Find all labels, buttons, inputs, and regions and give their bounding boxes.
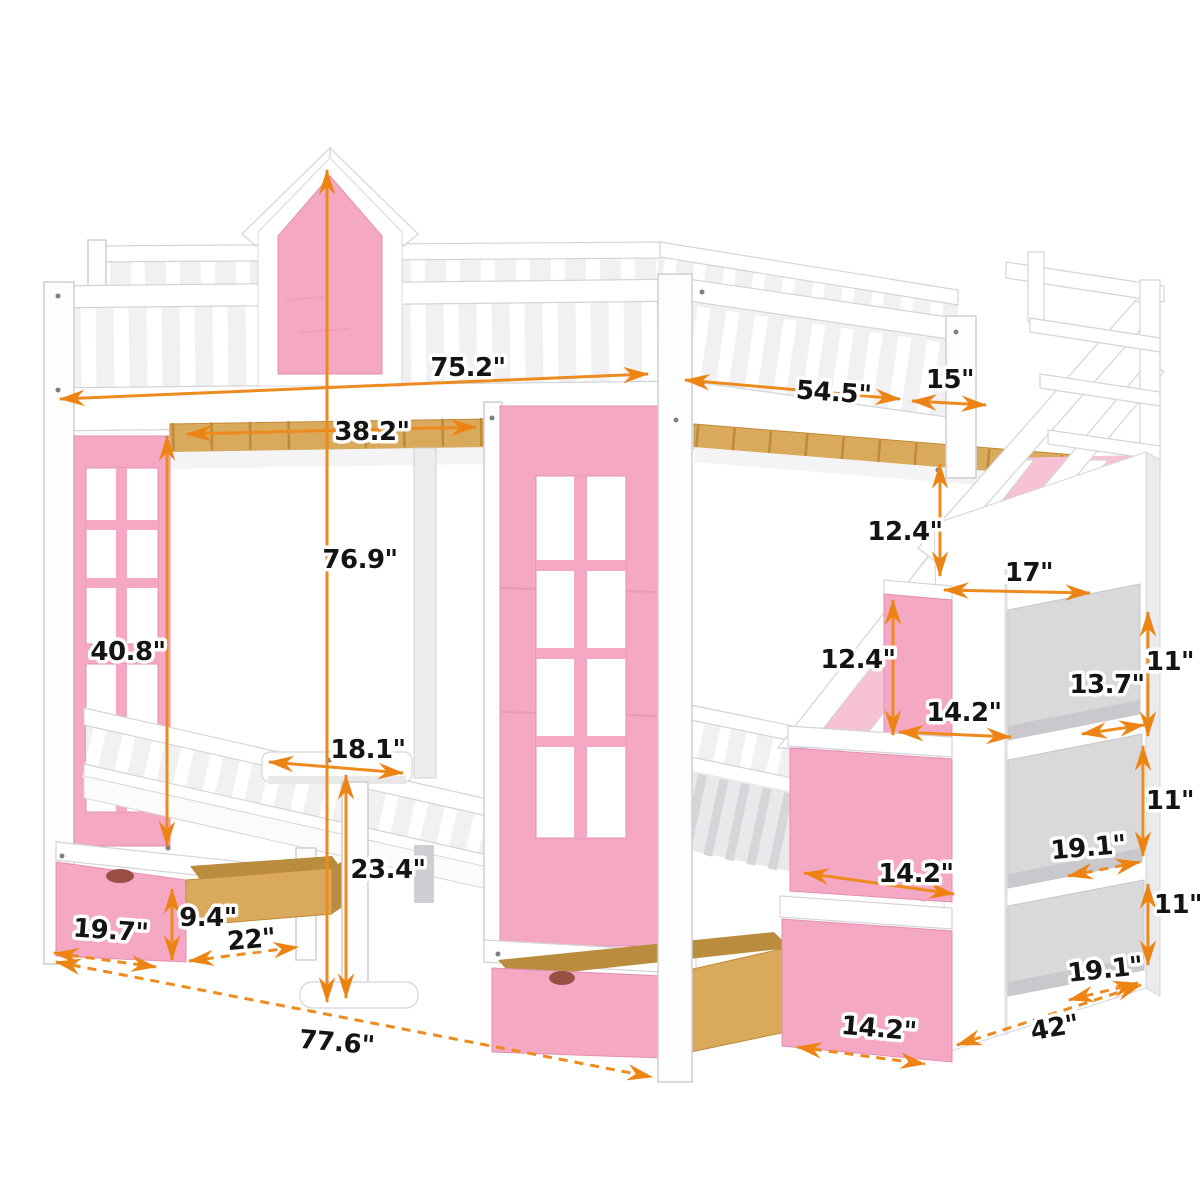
dim-label: 77.6" [298,1025,376,1061]
left-window-upper [86,468,158,644]
center-window [536,476,626,838]
dim-label: 40.8" [90,637,165,667]
table-base [300,982,418,1008]
dim-label: 75.2" [430,353,505,383]
center-drawer-unit [484,932,790,1058]
dim-label: 11" [1146,786,1194,816]
dim-label: 11" [1146,647,1194,677]
dim-label: 12.4" [867,517,942,547]
dim-label: 19.7" [72,913,149,948]
table-support-post [414,448,436,778]
dim-label: 14.2" [878,859,953,889]
dim-label: 11" [1154,890,1200,920]
castle-tower [242,148,418,386]
dim-label: 12.4" [820,645,895,675]
right-corner-post [946,316,976,478]
product-dimension-diagram: 75.2" 54.5" 15" 38.2" 76.9" 40.8" 12.4" … [0,0,1200,1200]
dim-label: 18.1" [330,735,405,765]
dim-label: 13.7" [1069,670,1144,700]
dim-label: 54.5" [795,375,872,410]
center-corner-post [658,274,692,1082]
dim-label: 76.9" [322,545,397,575]
dim-label: 23.4" [350,855,425,885]
dim-label: 22" [226,923,277,957]
bed-diagram-canvas: 75.2" 54.5" 15" 38.2" 76.9" 40.8" 12.4" … [0,0,1200,1200]
dim-label: 14.2" [926,698,1001,728]
center-wall-panel [484,402,662,962]
center-drawer-pink [492,968,662,1058]
dim-label: 15" [926,365,974,395]
dim-label: 38.2" [334,417,409,447]
cubby-top [1008,584,1140,740]
dim-label: 17" [1005,558,1053,588]
